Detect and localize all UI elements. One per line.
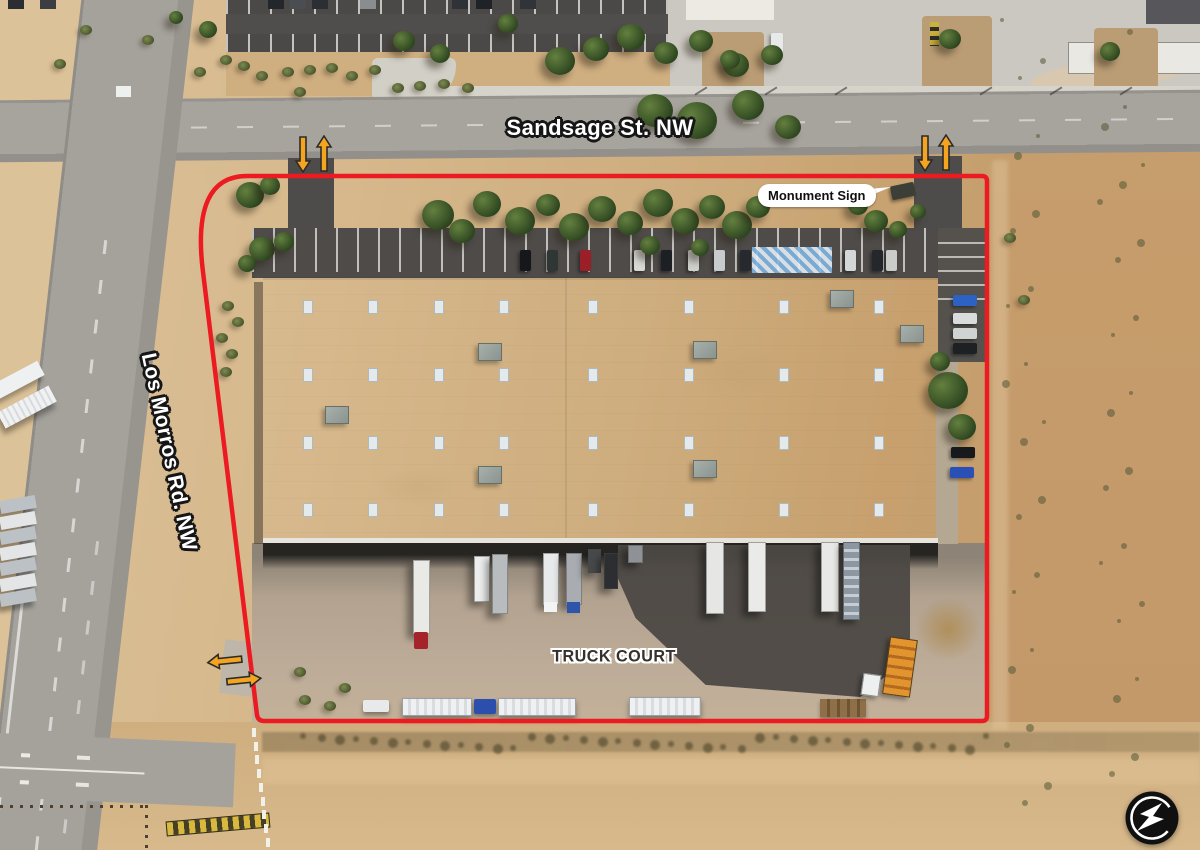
desert-scrub — [1139, 601, 1145, 607]
desert-scrub — [458, 742, 464, 748]
roof-skylight — [499, 300, 509, 314]
bush — [299, 695, 311, 705]
tree — [617, 24, 645, 50]
parked-trailer — [629, 697, 701, 716]
desert-scrub — [1137, 239, 1145, 247]
bush — [414, 81, 426, 91]
roof-hvac-unit — [830, 290, 854, 308]
desert-scrub — [1042, 420, 1046, 424]
roof-hvac-unit — [325, 406, 349, 424]
tree — [536, 194, 560, 216]
entrance-arrows-northeast — [917, 134, 957, 172]
desert-scrub — [1125, 467, 1133, 475]
parked-car — [290, 0, 306, 9]
reflector-post — [252, 728, 256, 737]
tree — [505, 207, 535, 235]
parked-car — [886, 250, 897, 271]
tree — [449, 219, 475, 243]
desert-scrub — [720, 744, 726, 750]
down-arrow-icon — [918, 136, 932, 171]
desert-scrub — [895, 741, 903, 749]
dirt-patch — [916, 598, 980, 660]
desert-scrub — [930, 743, 936, 749]
desert-scrub — [1040, 58, 1046, 64]
bush — [222, 301, 234, 311]
bush — [294, 667, 306, 677]
parked-car — [953, 313, 977, 324]
ada-parking-zone — [752, 247, 832, 273]
bush — [220, 55, 232, 65]
bush — [80, 25, 92, 35]
desert-scrub — [790, 735, 798, 743]
desert-scrub — [440, 741, 450, 751]
bush — [294, 87, 306, 97]
roof-skylight — [874, 503, 884, 517]
desert-scrub — [1111, 333, 1115, 337]
parked-car — [950, 467, 974, 478]
parked-trailer — [402, 698, 472, 716]
desert-scrub — [1000, 18, 1004, 22]
desert-scrub — [1107, 409, 1115, 417]
desert-scrub — [1016, 514, 1022, 520]
roof-hvac-unit — [693, 341, 717, 359]
pallet-stack-brown — [820, 699, 866, 717]
desert-scrub — [1006, 304, 1010, 308]
entrance-arrows-northwest — [295, 135, 335, 173]
desert-scrub — [860, 739, 870, 749]
tree — [689, 30, 713, 52]
tree — [948, 414, 976, 440]
tree — [889, 221, 907, 238]
roof-skylight — [684, 368, 694, 382]
tree — [260, 176, 280, 195]
north-dark-roof — [1146, 0, 1200, 24]
docked-trailer — [413, 560, 430, 634]
desert-scrub — [773, 734, 779, 740]
desert-scrub — [1030, 648, 1034, 652]
tree — [654, 42, 678, 64]
bush — [346, 71, 358, 81]
desert-scrub — [370, 737, 378, 745]
roof-skylight — [684, 300, 694, 314]
bush — [1018, 295, 1030, 305]
roof-skylight — [434, 503, 444, 517]
bush — [438, 79, 450, 89]
turn-arrow — [76, 783, 89, 788]
desert-scrub — [1097, 199, 1103, 205]
dirt-track — [262, 758, 1200, 784]
parked-car — [953, 295, 977, 306]
desert-scrub — [983, 733, 989, 739]
bush — [142, 35, 154, 45]
parked-car — [520, 0, 536, 9]
desert-scrub — [843, 738, 851, 746]
roof-skylight — [499, 368, 509, 382]
desert-scrub — [1133, 315, 1139, 321]
roof-skylight — [779, 300, 789, 314]
roof-skylight — [779, 503, 789, 517]
desert-scrub — [493, 744, 503, 754]
desert-scrub — [1119, 181, 1127, 189]
desert-scrub — [1101, 123, 1109, 131]
desert-scrub — [650, 740, 660, 750]
desert-scrub — [388, 738, 398, 748]
desert-scrub — [1004, 742, 1010, 748]
building-roof — [263, 277, 938, 543]
desert-scrub — [545, 734, 555, 744]
roof-stain — [373, 467, 463, 507]
parked-car — [872, 250, 883, 271]
desert-scrub — [668, 741, 674, 747]
desert-scrub — [1028, 286, 1034, 292]
desert-scrub — [1032, 210, 1040, 218]
parked-trailer — [498, 698, 576, 716]
tree — [640, 236, 660, 255]
tree — [722, 211, 752, 239]
lane-dashes — [55, 541, 99, 850]
roof-skylight — [588, 436, 598, 450]
desert-scrub — [1008, 666, 1016, 674]
desert-scrub — [1038, 496, 1046, 504]
roof-skylight — [588, 503, 598, 517]
bush — [304, 65, 316, 75]
desert-scrub — [1109, 771, 1115, 777]
tree — [473, 191, 501, 217]
roof-skylight — [874, 436, 884, 450]
parked-car — [476, 0, 492, 9]
roof-skylight — [303, 368, 313, 382]
bush — [226, 349, 238, 359]
desert-scrub — [965, 745, 975, 755]
bush — [392, 83, 404, 93]
tree — [910, 204, 926, 219]
tree — [169, 11, 183, 24]
roof-skylight — [303, 300, 313, 314]
brand-logo — [1124, 790, 1180, 846]
desert-scrub — [335, 735, 345, 745]
desert-scrub — [703, 743, 713, 753]
bush — [256, 71, 268, 81]
desert-scrub — [1103, 485, 1109, 491]
roof-skylight — [874, 368, 884, 382]
roof-skylight — [779, 436, 789, 450]
parked-car — [520, 250, 531, 271]
bush — [326, 63, 338, 73]
reflector-post — [261, 797, 265, 806]
parked-car — [8, 0, 24, 9]
tree — [761, 45, 783, 65]
parked-car — [40, 0, 56, 9]
truck-cab-red — [414, 632, 428, 649]
desert-scrub — [878, 740, 884, 746]
roof-skylight — [588, 368, 598, 382]
turn-arrow — [77, 756, 90, 761]
aerial-site-map: Sandsage St. NW Los Morros Rd. NW TRUCK … — [0, 0, 1200, 850]
docked-trailer — [566, 553, 582, 605]
desert-scrub — [1022, 800, 1028, 806]
right-arrow-icon — [226, 671, 261, 688]
lane-dash — [21, 753, 30, 757]
reflector-post — [257, 769, 261, 778]
monument-sign-callout: Monument Sign — [758, 184, 876, 207]
street-label-sandsage: Sandsage St. NW — [507, 117, 694, 139]
roof-hvac-unit — [900, 325, 924, 343]
street-label-los-morros: Los Morros Rd. NW — [138, 351, 200, 553]
lane-dash — [20, 780, 29, 784]
docked-trailer — [821, 542, 839, 612]
tree — [720, 50, 740, 69]
desert-scrub — [423, 740, 431, 748]
parked-car — [740, 250, 751, 271]
roof-skylight — [368, 436, 378, 450]
desert-scrub — [1127, 29, 1133, 35]
tree — [930, 352, 950, 371]
roof-skylight — [434, 368, 444, 382]
reflector-post — [255, 755, 259, 764]
entrance-arrows-west — [204, 647, 264, 697]
truck-cab-white — [544, 602, 557, 612]
parked-car — [845, 250, 856, 271]
roof-edge-shadow — [263, 277, 938, 280]
north-building-roof — [686, 0, 774, 20]
parked-car — [580, 250, 591, 271]
desert-scrub — [948, 744, 956, 752]
desert-scrub — [1002, 380, 1010, 388]
bush — [54, 59, 66, 69]
fence-line — [0, 805, 148, 808]
bush — [194, 67, 206, 77]
bush — [238, 61, 250, 71]
parked-car — [661, 250, 672, 271]
desert-scrub — [1123, 105, 1127, 109]
bush — [369, 65, 381, 75]
tree — [939, 29, 961, 49]
desert-scrub — [598, 737, 608, 747]
reflector-post — [259, 783, 263, 792]
bush — [324, 701, 336, 711]
docked-trailer — [748, 542, 766, 612]
desert-scrub — [1129, 391, 1133, 395]
desert-scrub — [1012, 590, 1016, 594]
roof-hvac-unit — [478, 466, 502, 484]
desert-scrub — [685, 742, 693, 750]
pickup-truck — [363, 700, 389, 712]
roof-skylight — [303, 436, 313, 450]
tree — [274, 232, 294, 251]
desert-scrub — [318, 734, 326, 742]
building-west-shadow — [254, 282, 263, 544]
docked-trailer — [706, 542, 724, 614]
monument-sign — [890, 182, 916, 201]
roof-hvac-unit — [478, 343, 502, 361]
parked-car — [951, 447, 975, 458]
parked-car — [547, 250, 558, 271]
desert-scrub — [1135, 677, 1139, 681]
truck-cab-white — [861, 673, 882, 697]
tree — [864, 210, 888, 232]
roof-skylight — [684, 503, 694, 517]
roof-skylight — [434, 436, 444, 450]
utility-box — [116, 86, 131, 97]
tree — [1100, 42, 1120, 61]
tree — [617, 211, 643, 235]
desert-scrub — [1115, 257, 1121, 263]
desert-scrub — [1121, 543, 1127, 549]
desert-scrub — [755, 733, 765, 743]
road-west-spur — [0, 733, 236, 807]
tree — [732, 90, 764, 120]
scrub-row — [262, 732, 1200, 752]
bush — [216, 333, 228, 343]
bush — [339, 683, 351, 693]
bush — [220, 367, 232, 377]
down-arrow-icon — [296, 137, 310, 172]
reflector-post — [266, 838, 270, 847]
up-arrow-icon — [317, 136, 331, 171]
roof-skylight — [499, 503, 509, 517]
bush — [1004, 233, 1016, 243]
desert-scrub — [563, 735, 569, 741]
tree — [671, 208, 699, 234]
desert-scrub — [1113, 695, 1121, 703]
desert-scrub — [528, 733, 536, 741]
roof-skylight — [684, 436, 694, 450]
reflector-post — [264, 824, 268, 833]
desert-scrub — [405, 739, 411, 745]
desert-scrub — [1018, 76, 1022, 80]
docked-trailer — [628, 545, 643, 563]
desert-scrub — [1036, 134, 1040, 138]
parked-car — [953, 328, 977, 339]
left-arrow-icon — [207, 652, 242, 669]
tree — [559, 213, 589, 241]
desert-scrub — [1141, 163, 1145, 167]
truck-cab-blue — [567, 602, 580, 613]
tree — [199, 21, 217, 38]
docked-trailer — [474, 556, 490, 602]
front-parking-lot — [252, 228, 964, 278]
docked-trailer — [543, 553, 559, 605]
center-line — [0, 766, 144, 775]
tree — [588, 196, 616, 222]
docked-trailer — [588, 549, 601, 573]
desert-scrub — [808, 736, 818, 746]
parked-car — [714, 250, 725, 271]
roof-skylight — [874, 300, 884, 314]
desert-scrub — [738, 745, 746, 753]
roof-skylight — [434, 300, 444, 314]
desert-scrub — [1026, 724, 1034, 732]
parked-car — [953, 343, 977, 354]
desert-scrub — [913, 742, 923, 752]
fuel-pump — [930, 22, 939, 46]
docked-trailer — [492, 554, 508, 614]
tree — [393, 31, 415, 51]
tree — [238, 255, 256, 272]
desert-scrub — [633, 739, 641, 747]
truck-cab-blue — [474, 699, 496, 714]
roof-skylight — [779, 368, 789, 382]
roof-seam — [565, 277, 567, 543]
reflector-post — [262, 810, 266, 819]
desert-scrub — [1014, 152, 1022, 160]
parked-car — [452, 0, 468, 9]
desert-scrub — [1034, 572, 1040, 578]
tree — [643, 189, 673, 217]
desert-scrub — [825, 737, 831, 743]
reflector-post — [254, 742, 258, 751]
desert-scrub — [1099, 561, 1103, 565]
bush — [282, 67, 294, 77]
desert-scrub — [510, 745, 516, 751]
tree — [430, 44, 450, 63]
fence-line — [145, 805, 148, 850]
desert-scrub — [1020, 438, 1028, 446]
roof-skylight — [499, 436, 509, 450]
roof-hvac-unit — [693, 460, 717, 478]
roof-skylight — [588, 300, 598, 314]
tree — [583, 37, 609, 61]
tree — [699, 195, 725, 219]
desert-scrub — [1131, 753, 1139, 761]
parked-car — [312, 0, 328, 9]
desert-scrub — [615, 738, 621, 744]
tree — [928, 372, 968, 409]
truck-court-label: TRUCK COURT — [552, 648, 676, 665]
parked-car — [360, 0, 376, 9]
roof-skylight — [368, 300, 378, 314]
desert-scrub — [353, 736, 359, 742]
docked-trailer — [604, 553, 618, 589]
up-arrow-icon — [939, 135, 953, 170]
roof-skylight — [368, 503, 378, 517]
desert-scrub — [1044, 782, 1052, 790]
desert-scrub — [1117, 619, 1121, 623]
parked-car — [268, 0, 284, 9]
tree — [545, 47, 575, 75]
desert-scrub — [300, 733, 306, 739]
desert-scrub — [1024, 362, 1028, 366]
dock-equipment-rack — [843, 542, 860, 620]
dirt-track-east — [992, 160, 1008, 730]
desert-scrub — [475, 743, 483, 751]
bush — [232, 317, 244, 327]
roof-skylight — [368, 368, 378, 382]
tree — [498, 14, 518, 33]
tree — [775, 115, 801, 139]
bush — [462, 83, 474, 93]
roof-skylight — [303, 503, 313, 517]
tree — [691, 239, 709, 256]
desert-scrub — [580, 736, 588, 744]
